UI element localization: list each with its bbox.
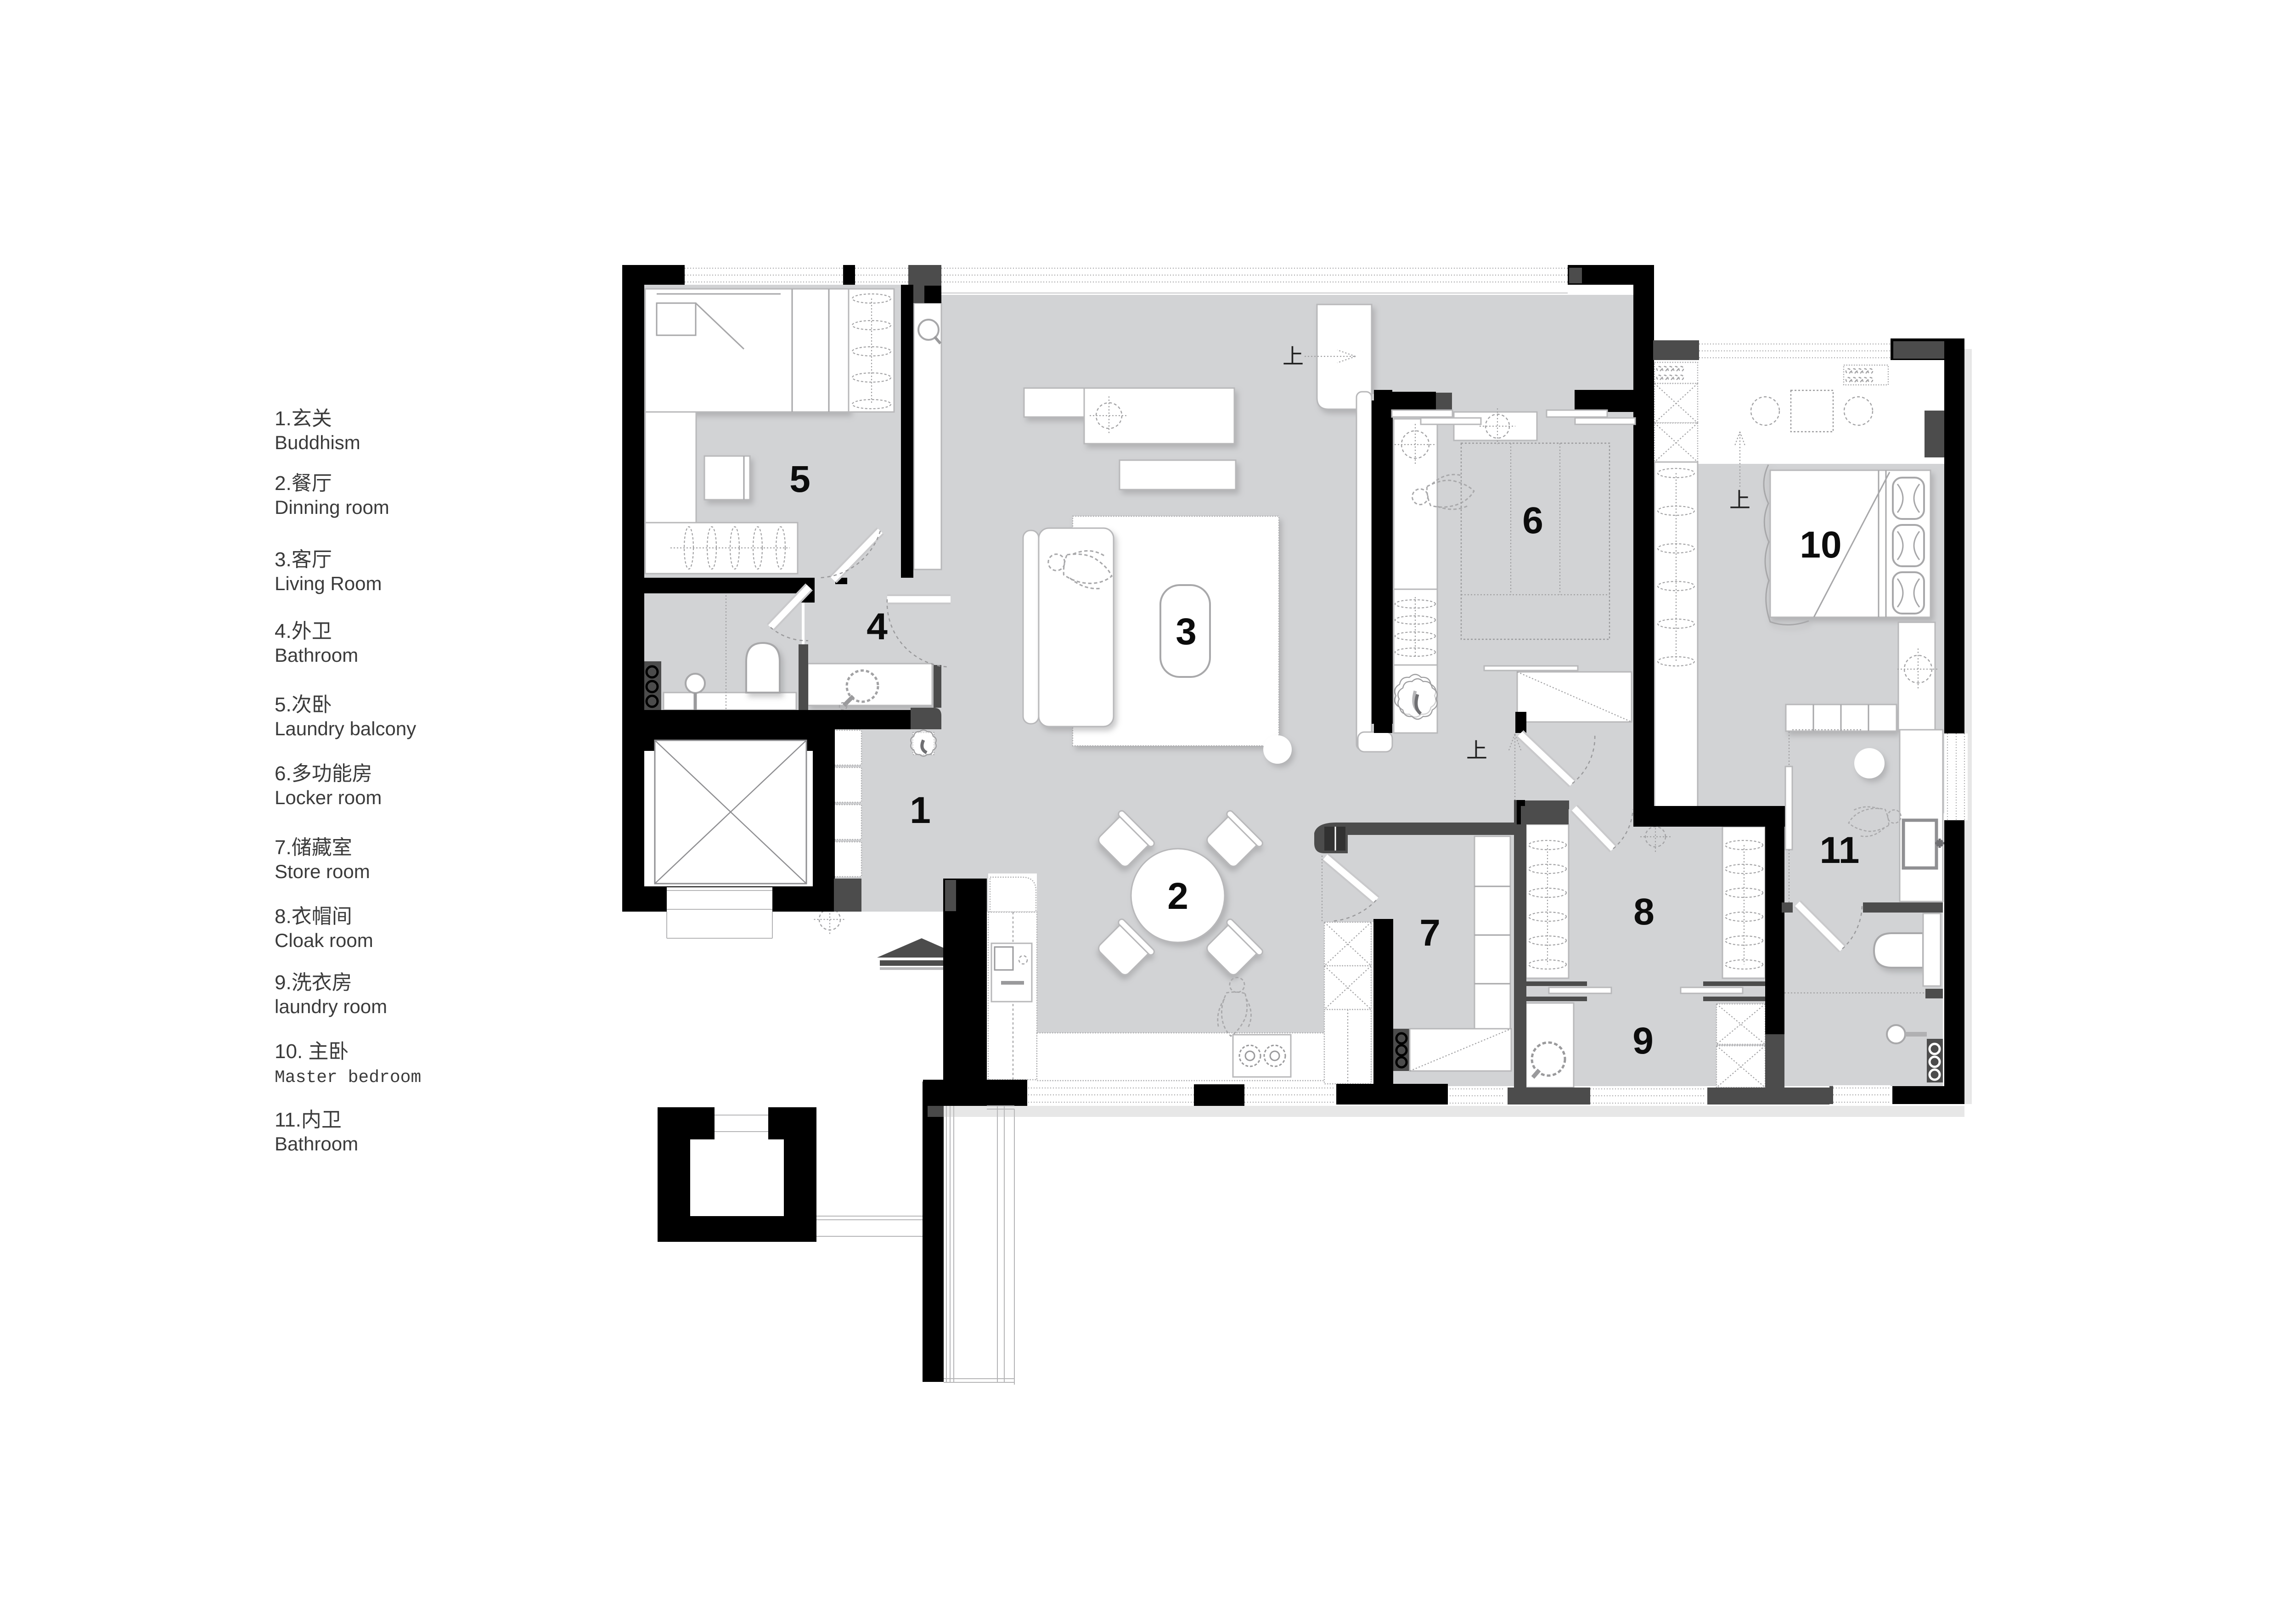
svg-text:11.内卫: 11.内卫 <box>275 1109 342 1131</box>
svg-text:5.次卧: 5.次卧 <box>275 693 332 716</box>
svg-text:上: 上 <box>1283 344 1304 368</box>
svg-text:11: 11 <box>1820 829 1860 871</box>
svg-text:6.多功能房: 6.多功能房 <box>275 762 372 785</box>
svg-text:Store room: Store room <box>275 861 370 882</box>
svg-text:8: 8 <box>1633 891 1654 933</box>
svg-text:4: 4 <box>867 606 888 648</box>
svg-text:7: 7 <box>1419 912 1441 954</box>
svg-text:Bathroom: Bathroom <box>275 1133 358 1155</box>
svg-text:Buddhism: Buddhism <box>275 432 360 453</box>
svg-text:上: 上 <box>1729 488 1750 512</box>
svg-text:上: 上 <box>1466 738 1487 762</box>
svg-text:1: 1 <box>910 789 931 831</box>
svg-text:9: 9 <box>1632 1020 1654 1062</box>
svg-text:6: 6 <box>1522 500 1543 541</box>
svg-text:Bathroom: Bathroom <box>275 644 358 666</box>
svg-text:Cloak room: Cloak room <box>275 930 373 951</box>
svg-text:3: 3 <box>1176 611 1197 653</box>
svg-text:laundry room: laundry room <box>275 996 387 1017</box>
svg-text:1.玄关: 1.玄关 <box>275 407 332 430</box>
svg-text:2: 2 <box>1167 875 1188 917</box>
svg-text:10. 主卧: 10. 主卧 <box>275 1040 349 1063</box>
svg-text:2.餐厅: 2.餐厅 <box>275 472 332 495</box>
svg-text:Dinning room: Dinning room <box>275 496 389 518</box>
svg-text:4.外卫: 4.外卫 <box>275 620 332 642</box>
svg-text:3.客厅: 3.客厅 <box>275 548 332 571</box>
svg-text:Laundry balcony: Laundry balcony <box>275 718 416 739</box>
svg-text:9.洗衣房: 9.洗衣房 <box>275 971 352 994</box>
svg-text:5: 5 <box>789 458 810 500</box>
svg-text:8.衣帽间: 8.衣帽间 <box>275 905 352 928</box>
svg-text:Living Room: Living Room <box>275 573 382 594</box>
svg-text:10: 10 <box>1800 524 1841 566</box>
svg-text:Locker room: Locker room <box>275 787 382 808</box>
svg-text:Master bedroom: Master bedroom <box>275 1068 421 1088</box>
svg-text:7.储藏室: 7.储藏室 <box>275 836 352 859</box>
